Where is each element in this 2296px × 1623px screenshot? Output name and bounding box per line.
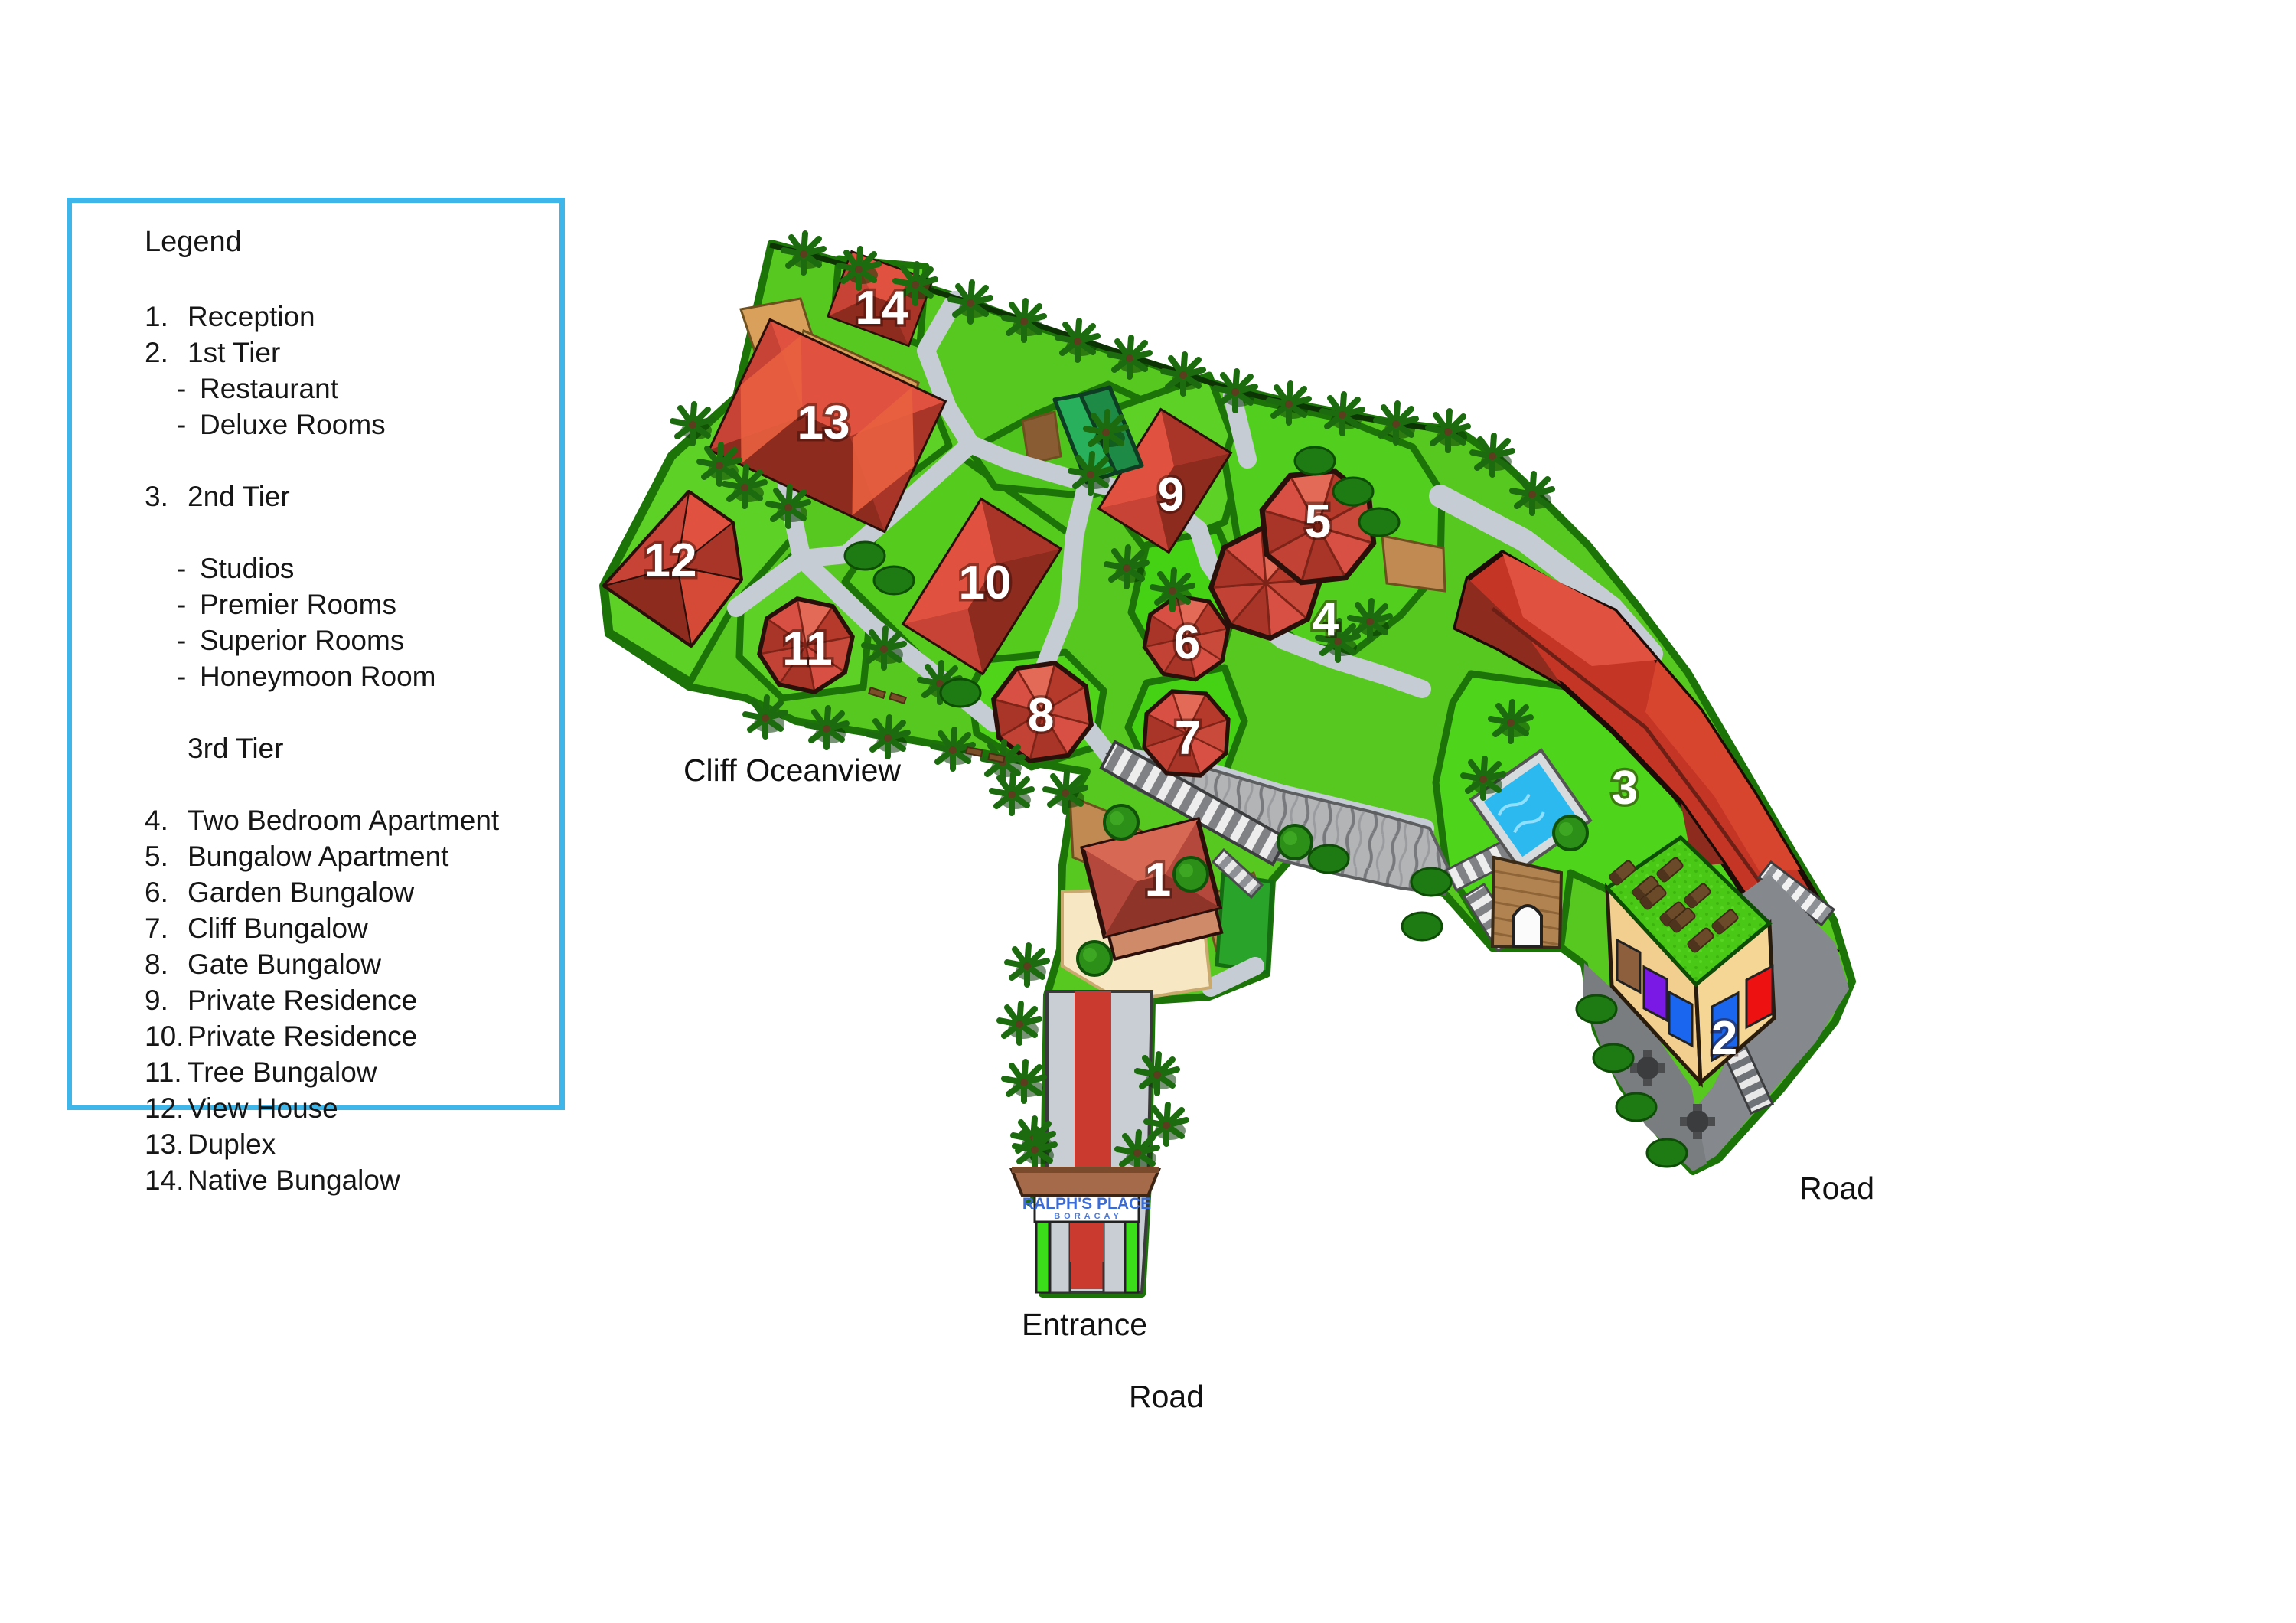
marker-10: 10 [959,557,1012,609]
deck-arch [1514,906,1541,946]
marker-6: 6 [1174,616,1200,669]
gate-post-left [1036,1222,1049,1292]
map-label: Entrance [1022,1307,1147,1342]
resort-site-map: RALPH'S PLACE BORACAY Cliff OceanviewRoa… [0,0,2296,1623]
marker-1: 1 [1145,854,1171,906]
marker-9: 9 [1158,469,1184,521]
marker-2: 2 [1711,1012,1737,1065]
marker-14: 14 [856,282,908,335]
map-label: Road [1799,1171,1874,1206]
marker-5: 5 [1305,495,1331,548]
gate-post-right [1125,1222,1138,1292]
marker-13: 13 [797,397,850,449]
marker-12: 12 [644,534,697,587]
resort-map-page: Legend 1.Reception2.1st Tier-Restaurant-… [0,0,2296,1623]
marker-7: 7 [1175,712,1201,765]
map-label: Cliff Oceanview [683,753,901,788]
marker-3: 3 [1612,762,1638,815]
marker-11: 11 [782,622,833,675]
marker-4: 4 [1313,593,1339,646]
gate-sign-subtitle: BORACAY [1054,1212,1123,1221]
gate-sign-name: RALPH'S PLACE [1022,1195,1151,1213]
gate-canopy [1012,1170,1159,1196]
marker-8: 8 [1028,689,1054,742]
map-label: Road [1129,1379,1204,1414]
